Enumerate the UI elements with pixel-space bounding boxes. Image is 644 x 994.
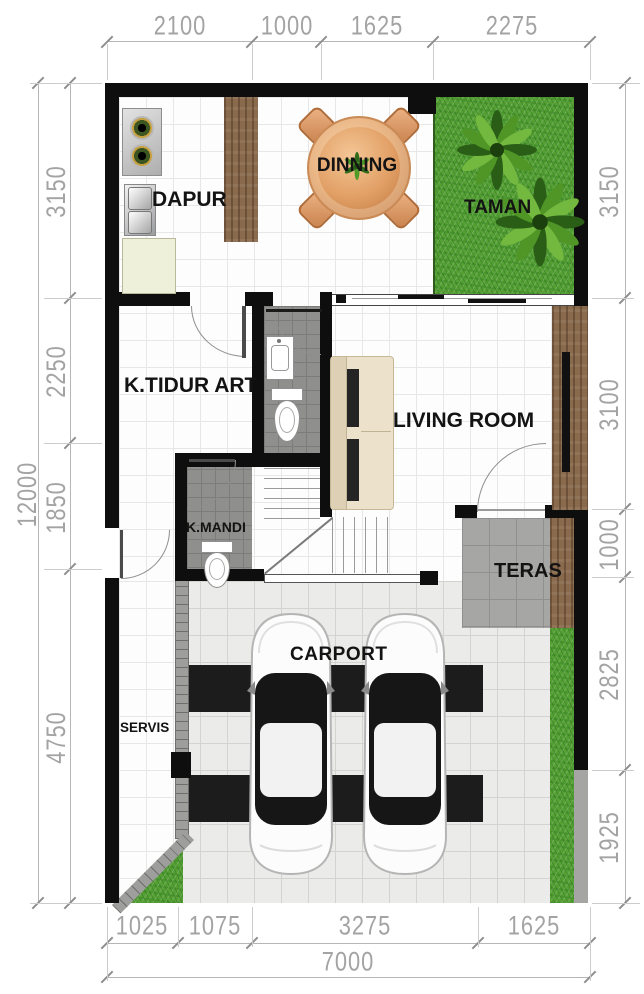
dim-ext <box>592 83 640 84</box>
floor-plan-canvas: DAPUR DINNING TAMAN K.TIDUR ART LIVING R… <box>0 0 644 994</box>
dim-ext <box>592 770 634 771</box>
sliding-window <box>332 294 574 306</box>
room-label-ktidur: K.TIDUR ART <box>124 374 257 398</box>
sliding-window-panel <box>336 295 346 303</box>
towel-bar <box>266 309 322 312</box>
stairs-upper-treads <box>264 467 320 519</box>
wall-stair-post <box>420 571 438 585</box>
dim-line-bottom <box>107 943 590 944</box>
room-label-teras: TERAS <box>494 560 562 583</box>
dim-ext <box>592 298 634 299</box>
dim-ext <box>590 44 591 80</box>
dim-label-bottom-1: 1075 <box>177 910 253 942</box>
room-label-carport: CARPORT <box>290 644 387 666</box>
dim-ext <box>478 907 479 947</box>
sink-basin <box>128 211 152 234</box>
dim-ext <box>433 44 434 80</box>
side-door-opening <box>105 528 119 578</box>
fence-stone <box>175 581 189 839</box>
garden-plant-icon <box>490 172 590 272</box>
dim-label-top-2: 1625 <box>339 10 415 42</box>
dim-line-right <box>625 83 626 903</box>
dim-ext <box>592 903 640 904</box>
faucet <box>277 339 281 343</box>
dim-label-top-3: 2275 <box>474 10 550 42</box>
tv-panel-slot <box>562 352 570 472</box>
dim-label-bottom-3: 1625 <box>496 910 572 942</box>
kmandi-door-leaf <box>189 459 235 462</box>
dim-label-bottom-total: 7000 <box>310 946 386 978</box>
wall-right-curb <box>574 770 588 903</box>
tv-wood-panel <box>552 306 588 510</box>
wall-divider <box>105 292 190 306</box>
wall-bathroom-bottom <box>252 453 332 467</box>
stove <box>122 108 162 176</box>
dim-label-top-1: 1000 <box>249 10 325 42</box>
dim-label-top-0: 2100 <box>142 10 218 42</box>
stove-burner <box>130 144 154 168</box>
dim-label-right-0: 3150 <box>593 154 625 230</box>
toilet-seat <box>279 407 295 433</box>
wall-entry <box>455 505 477 518</box>
dim-ext <box>44 443 102 444</box>
kmandi-toilet-seat <box>209 558 225 580</box>
bedroom-door-leaf <box>242 306 246 358</box>
dim-ext <box>321 44 322 80</box>
stairs-lower-treads <box>332 517 394 573</box>
dim-label-left-2: 1850 <box>40 470 72 546</box>
dim-ext <box>30 903 102 904</box>
dim-label-bottom-2: 3275 <box>327 910 403 942</box>
bathroom-sink <box>266 336 294 380</box>
dim-label-right-2: 1000 <box>593 507 625 583</box>
room-label-taman: TAMAN <box>464 197 531 219</box>
sliding-window-panel <box>398 295 444 299</box>
sofa-cushion-dark <box>347 369 359 427</box>
dim-ext <box>44 298 102 299</box>
dim-label-right-1: 3100 <box>593 367 625 443</box>
sink-bowl <box>271 345 289 371</box>
dim-ext <box>107 44 108 80</box>
wall-kmandi-left <box>175 453 187 581</box>
sofa-backrest <box>331 357 347 509</box>
side-door-leaf <box>120 530 123 578</box>
dim-label-left-3: 4750 <box>40 700 72 776</box>
room-label-servis: SERVIS <box>120 720 169 735</box>
dim-ext <box>44 569 102 570</box>
sofa-cushion-dark <box>347 439 359 501</box>
stove-burner <box>130 116 154 140</box>
grass-side-strip <box>550 628 574 903</box>
dim-label-bottom-0: 1025 <box>104 910 180 942</box>
kitchen-cabinet <box>122 238 176 294</box>
entry-door-threshold <box>477 509 545 511</box>
room-label-living: LIVING ROOM <box>393 409 534 433</box>
stairs-railing <box>264 574 426 583</box>
dim-label-left-1: 2250 <box>40 334 72 410</box>
wall-top <box>105 83 588 97</box>
sliding-window-panel <box>468 299 526 303</box>
gate-post <box>171 752 191 778</box>
sink-basin <box>128 187 152 210</box>
kitchen-counter <box>224 97 258 242</box>
room-label-dapur: DAPUR <box>152 188 227 212</box>
dim-ext <box>252 44 253 80</box>
dim-label-left-0: 3150 <box>40 154 72 230</box>
wall-stub-garden <box>408 83 436 114</box>
dim-label-right-3: 2825 <box>593 637 625 713</box>
sofa-seam <box>361 431 391 432</box>
room-label-kmandi: K.MANDI <box>186 519 246 535</box>
dim-ext <box>30 83 102 84</box>
room-label-dinning: DINNING <box>299 155 415 177</box>
sofa <box>330 356 394 510</box>
wall-left <box>105 83 119 903</box>
dim-label-right-4: 1925 <box>593 800 625 876</box>
dim-label-left-total: 12000 <box>11 452 43 538</box>
dim-ext <box>590 907 591 981</box>
